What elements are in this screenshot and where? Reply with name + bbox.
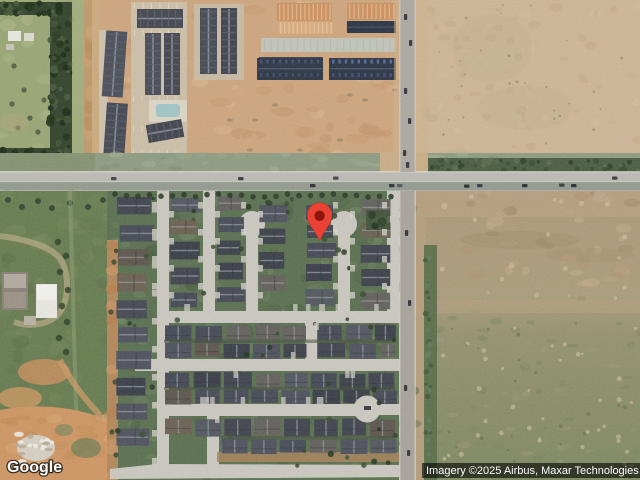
svg-text:Imagery ©2025 Airbus, Maxar Te: Imagery ©2025 Airbus, Maxar Technologies: [426, 465, 639, 477]
svg-text:Google: Google: [7, 459, 62, 476]
